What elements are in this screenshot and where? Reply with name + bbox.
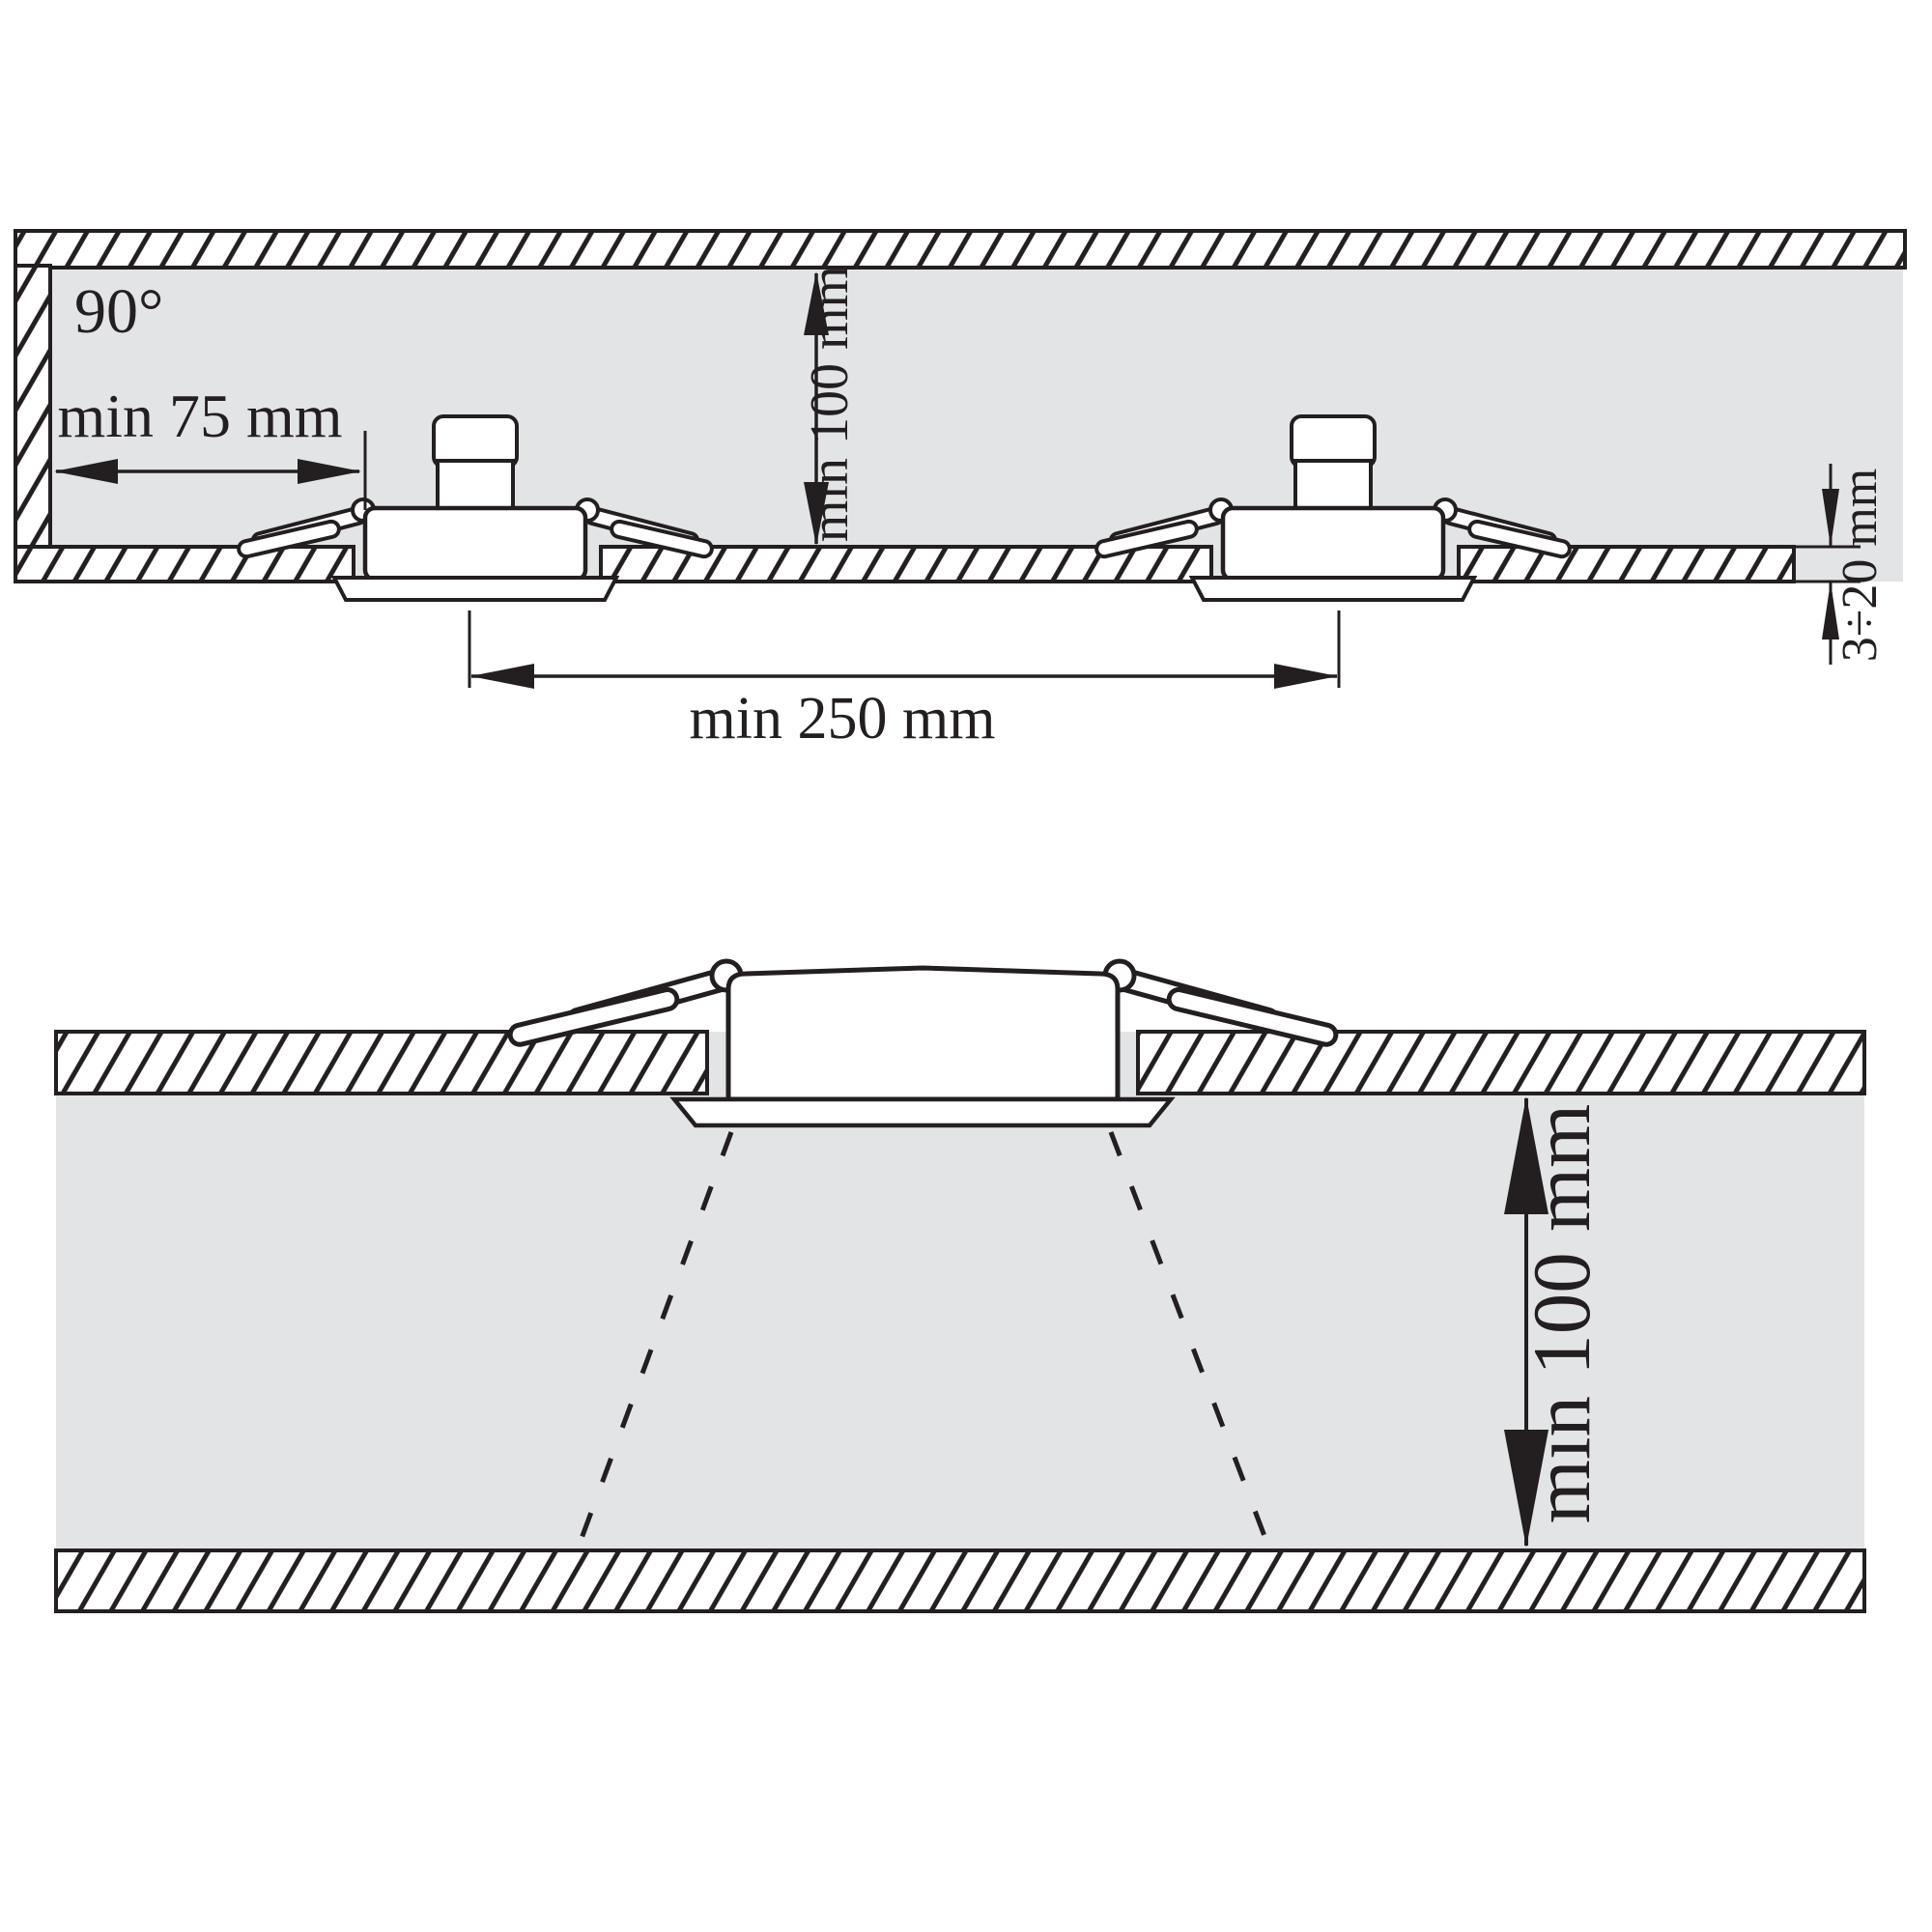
bottom-slab [56,1550,1864,1611]
left-wall [15,266,50,549]
trim-bezel [674,1099,1171,1125]
ceiling-panel-right [1138,1032,1864,1094]
ceiling-panel-left [56,1032,707,1094]
panel-thickness-label: 3÷20 mm [1833,469,1888,662]
dimension-front-clearance: min 100 mm [1504,1096,1607,1548]
vertical-clearance-label: min 100 mm [800,266,860,542]
arrowhead-right [1274,664,1338,689]
top-diagram-cavity-section: 90° min 75 mm min 100 mm 3÷20 mm [15,231,1905,752]
front-clearance-label: min 100 mm [1517,1104,1607,1523]
beam-angle-label: 90° [74,276,163,347]
installation-diagram: 90° min 75 mm min 100 mm 3÷20 mm [0,0,1932,1932]
top-slab [15,231,1905,268]
dimension-fixture-spacing: min 250 mm [469,611,1339,752]
fixture-spacing-label: min 250 mm [690,686,996,752]
bottom-diagram-room-section: min 100 mm [56,961,1864,1611]
ceiling-panel-segment-1 [15,547,354,582]
installation-diagram-page: 90° min 75 mm min 100 mm 3÷20 mm [0,0,1932,1932]
wall-clearance-label: min 75 mm [57,382,342,450]
ceiling-panel-segment-3 [1459,547,1794,582]
arrowhead-left [470,664,534,689]
dimension-vertical-clearance: min 100 mm [800,266,860,546]
fixture-body [728,968,1118,1099]
